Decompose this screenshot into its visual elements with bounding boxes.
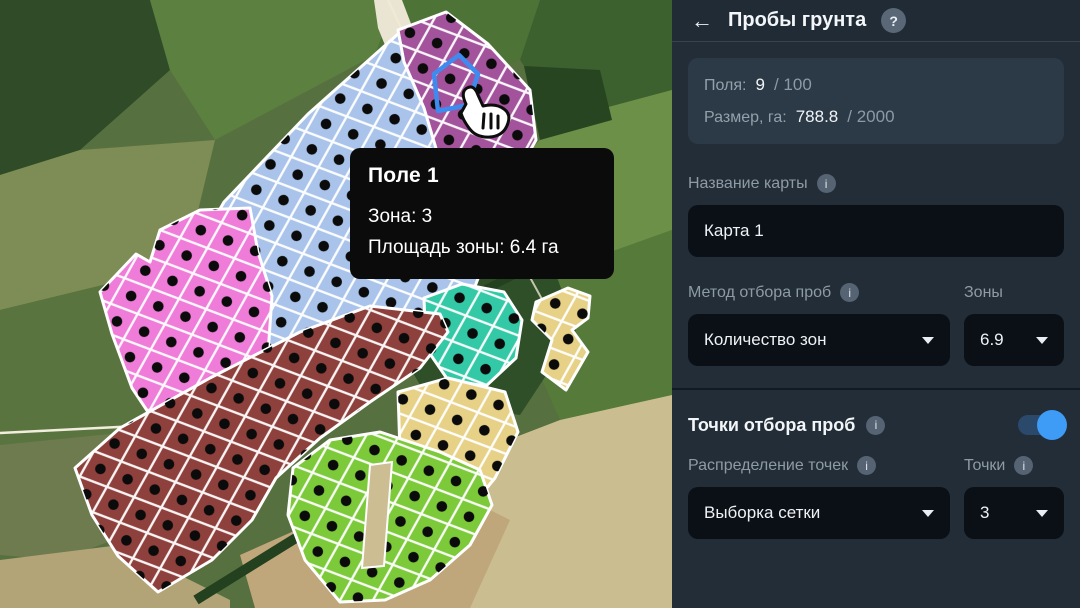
method-select-value: Количество зон bbox=[704, 330, 826, 350]
zones-select[interactable]: 6.9 bbox=[964, 314, 1064, 366]
soil-sampling-app: Поле 1 Зона: 3 Площадь зоны: 6.4 га ← Пр… bbox=[0, 0, 1080, 608]
zones-label-row: Зоны bbox=[964, 283, 1064, 302]
back-arrow-icon[interactable]: ← bbox=[691, 10, 713, 32]
tooltip-field-title: Поле 1 bbox=[368, 164, 596, 188]
help-icon[interactable]: ? bbox=[881, 8, 906, 33]
info-icon[interactable]: i bbox=[817, 174, 836, 193]
points-label: Точки bbox=[964, 457, 1005, 475]
method-label-row: Метод отбора проб i bbox=[688, 283, 950, 302]
size-total: / 2000 bbox=[847, 107, 894, 127]
points-select-value: 3 bbox=[980, 503, 989, 523]
points-toggle[interactable] bbox=[1018, 415, 1064, 435]
map-name-label: Название карты bbox=[688, 175, 808, 193]
points-section-header: Точки отбора проб i bbox=[688, 410, 1064, 440]
size-stat-row: Размер, га: 788.8 / 2000 bbox=[704, 101, 1048, 133]
method-label: Метод отбора проб bbox=[688, 284, 831, 302]
fields-stat-row: Поля: 9 / 100 bbox=[704, 69, 1048, 101]
map-name-label-row: Название карты i bbox=[688, 174, 1064, 193]
fields-label: Поля: bbox=[704, 77, 747, 95]
info-icon[interactable]: i bbox=[866, 416, 885, 435]
map-canvas[interactable]: Поле 1 Зона: 3 Площадь зоны: 6.4 га bbox=[0, 0, 672, 608]
distribution-label: Распределение точек bbox=[688, 457, 848, 475]
zones-label: Зоны bbox=[964, 284, 1003, 302]
distribution-select-value: Выборка сетки bbox=[704, 503, 820, 523]
method-selects-row: Количество зон 6.9 bbox=[688, 314, 1064, 366]
size-label: Размер, га: bbox=[704, 109, 787, 127]
points-section-title: Точки отбора проб bbox=[688, 415, 855, 436]
map-name-value: Карта 1 bbox=[704, 221, 764, 241]
size-value: 788.8 bbox=[796, 107, 839, 127]
fields-total: / 100 bbox=[774, 75, 812, 95]
method-select[interactable]: Количество зон bbox=[688, 314, 950, 366]
limits-card: Поля: 9 / 100 Размер, га: 788.8 / 2000 bbox=[688, 58, 1064, 144]
tooltip-area-line: Площадь зоны: 6.4 га bbox=[368, 232, 596, 263]
panel-body: Поля: 9 / 100 Размер, га: 788.8 / 2000 Н… bbox=[672, 42, 1080, 555]
chevron-down-icon bbox=[1036, 510, 1048, 517]
distribution-labels-row: Распределение точек i Точки i bbox=[688, 456, 1064, 475]
map-tooltip: Поле 1 Зона: 3 Площадь зоны: 6.4 га bbox=[350, 148, 614, 279]
distribution-label-row: Распределение точек i bbox=[688, 456, 950, 475]
side-panel: ← Пробы грунта ? Поля: 9 / 100 Размер, г… bbox=[672, 0, 1080, 608]
section-divider bbox=[672, 388, 1080, 390]
fields-value: 9 bbox=[756, 75, 765, 95]
panel-header: ← Пробы грунта ? bbox=[672, 0, 1080, 42]
toggle-knob bbox=[1037, 410, 1067, 440]
page-title: Пробы грунта bbox=[728, 9, 866, 32]
points-select[interactable]: 3 bbox=[964, 487, 1064, 539]
method-labels-row: Метод отбора проб i Зоны bbox=[688, 283, 1064, 302]
distribution-select[interactable]: Выборка сетки bbox=[688, 487, 950, 539]
distribution-selects-row: Выборка сетки 3 bbox=[688, 487, 1064, 539]
tooltip-zone-line: Зона: 3 bbox=[368, 201, 596, 232]
points-label-row: Точки i bbox=[964, 456, 1064, 475]
chevron-down-icon bbox=[922, 337, 934, 344]
info-icon[interactable]: i bbox=[1014, 456, 1033, 475]
map-name-input[interactable]: Карта 1 bbox=[688, 205, 1064, 257]
info-icon[interactable]: i bbox=[857, 456, 876, 475]
chevron-down-icon bbox=[922, 510, 934, 517]
chevron-down-icon bbox=[1036, 337, 1048, 344]
info-icon[interactable]: i bbox=[840, 283, 859, 302]
zones-select-value: 6.9 bbox=[980, 330, 1004, 350]
